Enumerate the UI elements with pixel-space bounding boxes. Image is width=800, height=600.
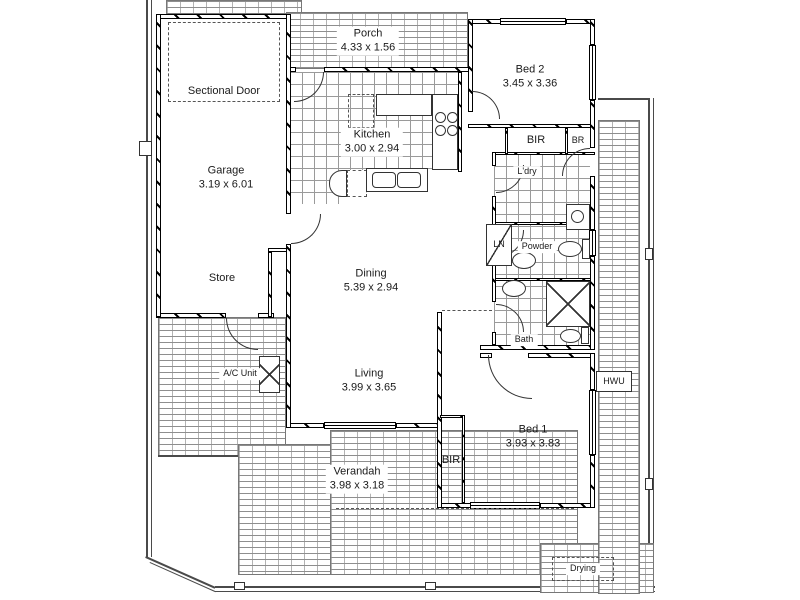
garage-door-arc bbox=[291, 214, 321, 244]
trough-bowl-icon bbox=[571, 210, 584, 223]
basin-icon bbox=[502, 280, 526, 297]
fence-post bbox=[645, 248, 653, 260]
fence-right bbox=[648, 98, 650, 590]
label-br: BR bbox=[572, 135, 585, 147]
paving-top-strip bbox=[166, 0, 302, 14]
bir-br-divider-wall bbox=[565, 128, 568, 154]
bed2-east-window bbox=[589, 45, 596, 100]
fence-left bbox=[146, 0, 148, 557]
label-bir-bed2: BIR bbox=[527, 133, 545, 147]
east-wall bbox=[590, 176, 595, 230]
gate-post bbox=[139, 141, 152, 156]
cooktop-icon bbox=[435, 112, 457, 136]
ac-unit-box bbox=[259, 356, 280, 393]
bed1-top-wall bbox=[528, 353, 595, 358]
bed1-door-arc bbox=[488, 355, 532, 399]
bed1-east-window bbox=[589, 390, 596, 455]
living-south-window bbox=[324, 422, 396, 429]
bir1-top-wall bbox=[440, 415, 462, 418]
courtyard-garden-wall bbox=[158, 455, 238, 457]
room-label-laundry: L'dry bbox=[513, 166, 540, 178]
wet-wing-left-wall bbox=[492, 332, 496, 345]
room-label-bed2: Bed 2 3.45 x 3.36 bbox=[503, 63, 557, 92]
bed1-east-wall bbox=[590, 353, 595, 390]
toilet-cistern-icon bbox=[581, 327, 589, 344]
fence-diagonal-inner bbox=[150, 562, 216, 592]
fridge-space-outline bbox=[348, 94, 374, 128]
fence-diagonal bbox=[145, 556, 215, 589]
store-right-wall bbox=[268, 252, 272, 317]
east-wall bbox=[590, 100, 595, 148]
bir2-left-wall bbox=[505, 128, 508, 154]
fence-right-inner bbox=[653, 98, 654, 590]
garage-left-wall bbox=[156, 14, 161, 317]
fence-post bbox=[234, 582, 245, 590]
toilet-icon bbox=[560, 329, 581, 343]
bed2-door-arc bbox=[472, 91, 500, 119]
room-label-store: Store bbox=[209, 271, 235, 285]
floor-plan: Porch 4.33 x 1.56 Sectional Door Garage … bbox=[0, 0, 800, 600]
fence-left-inner bbox=[151, 0, 152, 557]
powder-east-window bbox=[589, 230, 596, 256]
living-south-wall bbox=[396, 423, 442, 428]
paving-right-path bbox=[598, 120, 640, 594]
store-bottom-wall bbox=[156, 313, 226, 318]
fence-post bbox=[425, 582, 436, 590]
room-label-bed1: Bed 1 3.93 x 3.83 bbox=[506, 423, 560, 452]
north-wall bbox=[324, 67, 472, 72]
room-label-garage: Garage 3.19 x 6.01 bbox=[199, 164, 253, 193]
living-south-wall bbox=[286, 423, 324, 428]
east-wall bbox=[590, 19, 595, 45]
verandah-edge-line bbox=[336, 508, 574, 509]
toilet-icon bbox=[558, 241, 582, 257]
kitchen-right-wall bbox=[458, 72, 462, 172]
shower-icon bbox=[546, 281, 590, 327]
fence-post bbox=[645, 478, 653, 490]
east-wall bbox=[590, 256, 595, 350]
bed2-top-wall bbox=[468, 19, 502, 24]
dining-west-wall bbox=[286, 244, 291, 428]
room-label-porch: Porch 4.33 x 1.56 bbox=[337, 27, 399, 56]
pantry-outline bbox=[347, 170, 367, 197]
wet-wing-left-wall bbox=[492, 152, 496, 166]
bed2-top-window bbox=[500, 18, 566, 25]
garage-top-wall bbox=[156, 14, 291, 19]
room-label-verandah: Verandah 3.98 x 3.18 bbox=[326, 465, 388, 494]
label-drying: Drying bbox=[566, 563, 600, 575]
room-label-bath: Bath bbox=[511, 334, 538, 346]
bath-bottom-wall bbox=[480, 345, 595, 350]
fence-top-connector bbox=[598, 98, 650, 100]
island-round-end bbox=[329, 170, 347, 197]
label-ac-unit: A/C Unit bbox=[219, 368, 261, 380]
room-label-living: Living 3.99 x 3.65 bbox=[342, 367, 396, 396]
kitchen-bench-top bbox=[376, 94, 432, 116]
label-bir-bed1: BIR bbox=[442, 453, 460, 467]
paving-southwest bbox=[238, 444, 332, 575]
basin-icon bbox=[512, 252, 536, 269]
bed1-east-wall bbox=[590, 455, 595, 508]
bir2-top-wall bbox=[468, 124, 595, 128]
label-linen: LN bbox=[493, 239, 505, 251]
garage-right-wall bbox=[286, 14, 291, 214]
sink-bowl-icon bbox=[397, 172, 421, 188]
room-label-kitchen: Kitchen 3.00 x 2.94 bbox=[341, 128, 403, 157]
toilet-cistern-icon bbox=[582, 239, 590, 259]
label-sectional-door: Sectional Door bbox=[188, 84, 260, 98]
room-label-powder: Powder bbox=[518, 241, 557, 253]
label-hwu: HWU bbox=[603, 376, 625, 388]
hall-opening-line bbox=[442, 310, 492, 311]
living-right-wall bbox=[437, 312, 442, 508]
sink-bowl-icon bbox=[372, 172, 396, 188]
bir1-inner-wall bbox=[462, 415, 465, 503]
room-label-dining: Dining 5.39 x 2.94 bbox=[344, 267, 398, 296]
